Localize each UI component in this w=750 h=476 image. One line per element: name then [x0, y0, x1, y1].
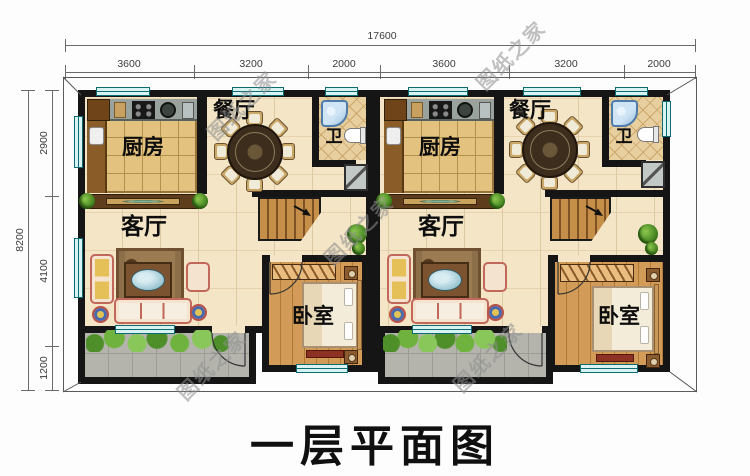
window	[615, 87, 648, 96]
potted-plant	[645, 242, 658, 255]
unit1-side-sink	[89, 127, 104, 145]
dim-seg-label: 3200	[541, 58, 591, 70]
unit1-stair-wall	[252, 190, 366, 197]
unit2-kitchen-appliance	[479, 102, 491, 119]
window	[523, 87, 581, 96]
nightstand	[646, 268, 660, 282]
headboard	[654, 284, 659, 354]
plan-title: 一层平面图	[0, 410, 750, 474]
armchair	[186, 262, 210, 292]
dim-tick	[21, 90, 35, 91]
side-sofa	[387, 254, 411, 304]
dim-seg-label: 1200	[38, 345, 50, 391]
coffee-table-glass	[428, 269, 462, 291]
unit2-living-label: 客厅	[411, 214, 471, 239]
unit1-divider-cabinet	[87, 194, 199, 209]
dim-seg-label: 2000	[634, 58, 684, 70]
window	[580, 364, 638, 373]
window	[115, 325, 175, 334]
door-opening	[270, 255, 302, 262]
potted-plant	[489, 193, 505, 209]
nightstand	[646, 354, 660, 368]
unit1-living-label: 客厅	[114, 214, 174, 239]
window	[96, 87, 150, 96]
dim-top-total-label: 17600	[352, 30, 412, 42]
unit1-bedroom-label: 卧室	[282, 305, 344, 328]
unit1-wardrobe	[272, 264, 336, 280]
dim-seg-label: 3200	[226, 58, 276, 70]
unit2-dining-label: 餐厅	[502, 99, 558, 122]
unit2-kitchen-label: 厨房	[405, 136, 475, 159]
window	[662, 101, 671, 137]
unit2-bath-wall-s	[602, 160, 646, 167]
unit1-toilet	[344, 128, 361, 143]
headboard	[357, 280, 362, 350]
unit2-bath-wall-w	[602, 97, 609, 167]
unit2-stair-wall	[545, 190, 663, 197]
unit1-stove	[132, 101, 155, 119]
window	[296, 364, 348, 373]
unit2-bedroom-label: 卧室	[586, 305, 652, 328]
armchair	[483, 262, 507, 292]
bed-bench	[306, 350, 344, 358]
dim-seg-label: 4100	[38, 248, 50, 294]
unit1-kitchen-appliance	[182, 102, 194, 119]
side-sofa	[90, 254, 114, 304]
dim-tick	[45, 196, 59, 197]
main-sofa	[411, 298, 489, 324]
coffee-table-glass	[131, 269, 165, 291]
nightstand	[344, 350, 358, 364]
unit1-cutting-board	[114, 102, 126, 118]
dim-top-total-line	[65, 45, 695, 46]
window	[74, 116, 83, 168]
unit2-bath-label: 卫	[612, 128, 636, 147]
unit2-side-sink	[386, 127, 401, 145]
dim-tick	[21, 390, 35, 391]
window	[412, 325, 472, 334]
bed-bench	[596, 354, 634, 362]
window	[325, 87, 358, 96]
unit2-fridge	[384, 99, 407, 121]
window	[74, 238, 83, 298]
unit1-toilet-tank	[360, 127, 366, 144]
dim-tick	[695, 39, 696, 52]
dim-seg-label: 3600	[419, 58, 469, 70]
pillow	[344, 322, 353, 340]
unit2-wardrobe	[560, 264, 634, 282]
unit2-toilet-tank	[653, 126, 659, 143]
unit2-sofa-set	[387, 246, 507, 328]
round-mat	[487, 304, 504, 321]
round-mat	[190, 304, 207, 321]
dim-seg-label: 3600	[104, 58, 154, 70]
pillow	[344, 288, 353, 306]
unit2-kitchen-sink	[457, 102, 473, 118]
window	[408, 87, 468, 96]
unit1-kitchen-label: 厨房	[108, 136, 178, 159]
potted-plant	[192, 193, 208, 209]
door-opening	[558, 255, 590, 262]
unit1-kitchen-sink	[160, 102, 176, 118]
unit1-bath-wall-w	[312, 97, 319, 167]
unit1-sofa-set	[90, 246, 210, 328]
main-sofa	[114, 298, 192, 324]
coffee-table	[124, 262, 172, 298]
unit1-fridge	[87, 99, 110, 121]
dim-left-seg-line	[52, 90, 53, 390]
unit2-toilet	[637, 127, 654, 142]
unit2-divider-cabinet	[384, 194, 496, 209]
unit2-washer	[641, 161, 665, 188]
coffee-table	[421, 262, 469, 298]
dim-left-total-label: 8200	[14, 217, 26, 263]
round-mat	[389, 306, 406, 323]
dim-left-total-line	[28, 90, 29, 390]
dim-seg-label: 2900	[38, 120, 50, 166]
dim-tick	[45, 90, 59, 91]
dining-table-top	[227, 124, 283, 180]
dim-tick	[65, 39, 66, 52]
nightstand	[344, 266, 358, 280]
dim-seg-label: 2000	[319, 58, 369, 70]
unit1-washer	[344, 164, 368, 191]
unit2-stove	[429, 101, 452, 119]
floorplan-canvas: 17600 3600 3200 2000 3600 3200 2000 8200…	[0, 0, 750, 476]
round-mat	[92, 306, 109, 323]
unit2-cutting-board	[411, 102, 423, 118]
pillow	[640, 326, 649, 344]
potted-plant	[638, 224, 658, 244]
potted-plant	[79, 193, 95, 209]
unit1-bath-label: 卫	[322, 128, 346, 147]
dining-table-top	[522, 122, 578, 178]
